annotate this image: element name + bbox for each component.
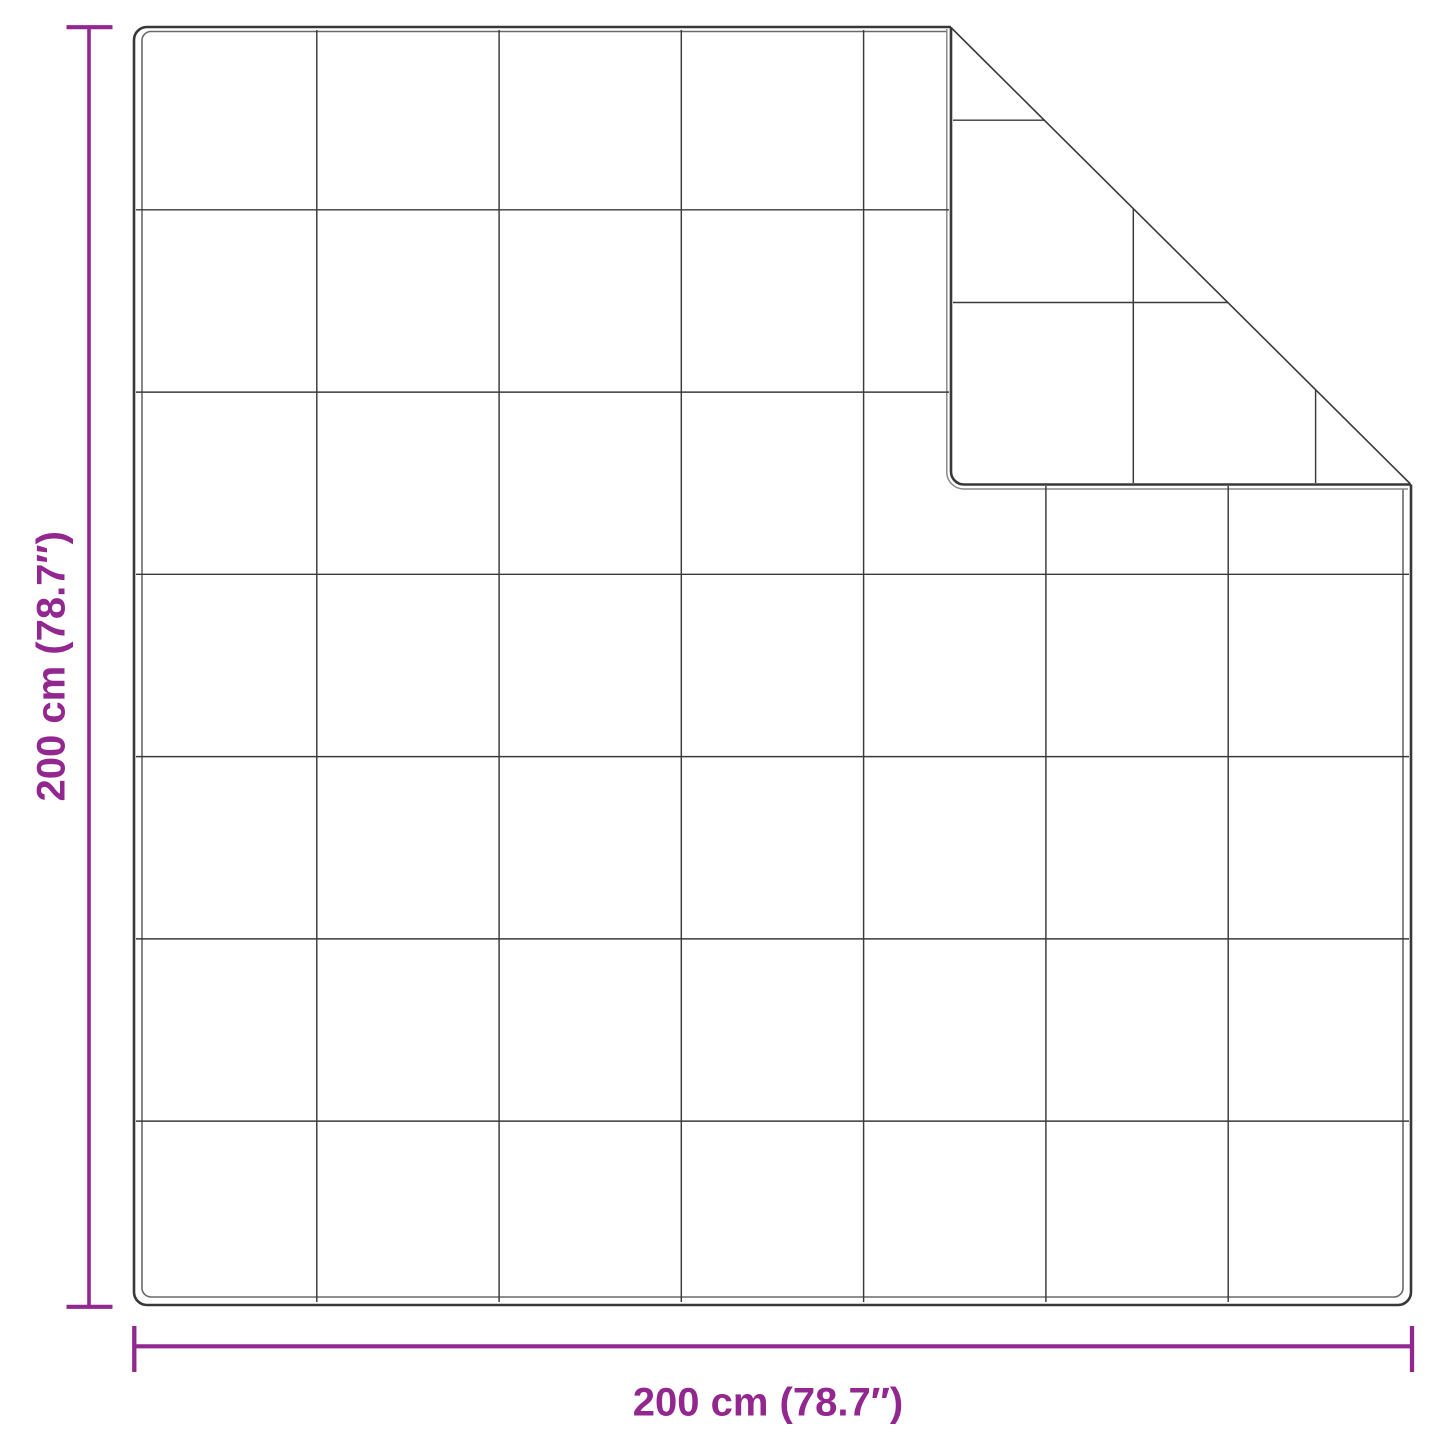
svg-text:200 cm (78.7″): 200 cm (78.7″) xyxy=(633,1381,903,1425)
svg-text:200 cm (78.7″): 200 cm (78.7″) xyxy=(30,531,74,801)
